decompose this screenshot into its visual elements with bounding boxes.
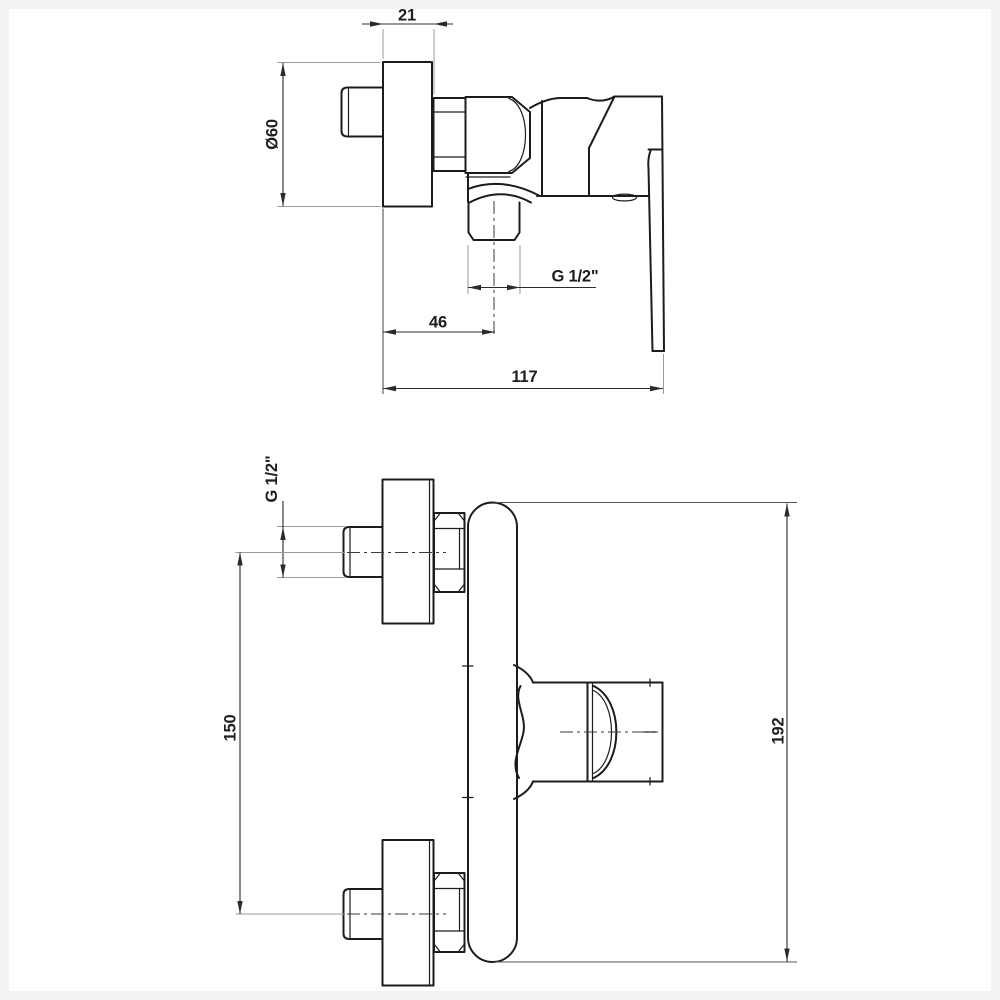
arrowhead <box>280 63 285 76</box>
dimension-label-117: 117 <box>511 368 537 386</box>
arrowhead <box>237 901 242 914</box>
dimension-label-192: 192 <box>770 718 788 745</box>
arrowhead <box>280 565 285 578</box>
dimension-outlet-offset: 46 <box>383 314 495 335</box>
handle-front <box>514 665 663 799</box>
handle-lever-side <box>615 97 665 352</box>
lever-left-edge <box>648 150 652 352</box>
front-view: G 1/2" 150 192 <box>222 456 798 986</box>
arrowhead <box>650 386 663 391</box>
arrowhead <box>507 285 520 290</box>
arrowhead <box>784 949 789 962</box>
shoulder-lower-wave <box>470 194 532 202</box>
page-frame <box>5 5 996 996</box>
valve-body-side <box>530 97 649 201</box>
arrowhead <box>434 21 447 26</box>
dimension-inlet-thread: G 1/2" <box>263 456 345 578</box>
nipple-outline <box>342 88 384 137</box>
dimension-rosette-depth: 21 <box>362 7 453 95</box>
arrowhead <box>280 527 285 540</box>
nut-body <box>434 98 466 171</box>
wall-rosette-side <box>383 62 432 207</box>
cap-inner-rim <box>509 99 526 172</box>
mounting-nut-side <box>434 98 466 171</box>
arrowhead <box>280 193 285 206</box>
dimension-label-150: 150 <box>222 715 240 742</box>
arrowhead <box>383 329 396 334</box>
lever-front-diagonal <box>589 97 615 149</box>
shower-outlet-side <box>468 173 540 240</box>
rosette-bottom <box>383 840 434 986</box>
dimension-label-d60: Ø60 <box>264 119 282 150</box>
arrowhead <box>383 386 396 391</box>
shower-mixer-dimension-drawing: 21 Ø60 G 1/2" 46 <box>0 0 1000 1000</box>
arrowhead <box>784 504 789 517</box>
dimension-total-depth: 117 <box>383 354 664 394</box>
inlet-assembly-top <box>344 480 465 624</box>
rosette-top <box>383 480 434 624</box>
body-capsule <box>468 503 517 963</box>
lever-right-edge <box>662 97 664 352</box>
body-top-edge <box>530 98 587 108</box>
supply-nipple-side <box>342 88 384 137</box>
dimension-label-21: 21 <box>398 7 416 25</box>
arrowhead <box>468 285 481 290</box>
technical-drawing-page: 21 Ø60 G 1/2" 46 <box>0 0 1000 1000</box>
dimension-rosette-diameter: Ø60 <box>264 63 381 207</box>
arrowhead <box>482 329 495 334</box>
dimension-label-outlet-thread: G 1/2" <box>552 268 599 286</box>
dimension-outlet-thread: G 1/2" <box>468 245 598 294</box>
body-fillet <box>587 97 615 101</box>
arrowhead <box>237 553 242 566</box>
dimension-label-46: 46 <box>429 314 447 332</box>
valve-cap-side <box>466 97 531 177</box>
arrowhead <box>370 21 383 26</box>
side-view: 21 Ø60 G 1/2" 46 <box>264 7 665 395</box>
dimension-label-inlet-thread: G 1/2" <box>263 456 281 503</box>
dimension-total-height: 192 <box>770 504 790 962</box>
dimension-inlet-spacing: 150 <box>222 553 346 915</box>
inlet-assembly-bottom <box>344 840 465 986</box>
